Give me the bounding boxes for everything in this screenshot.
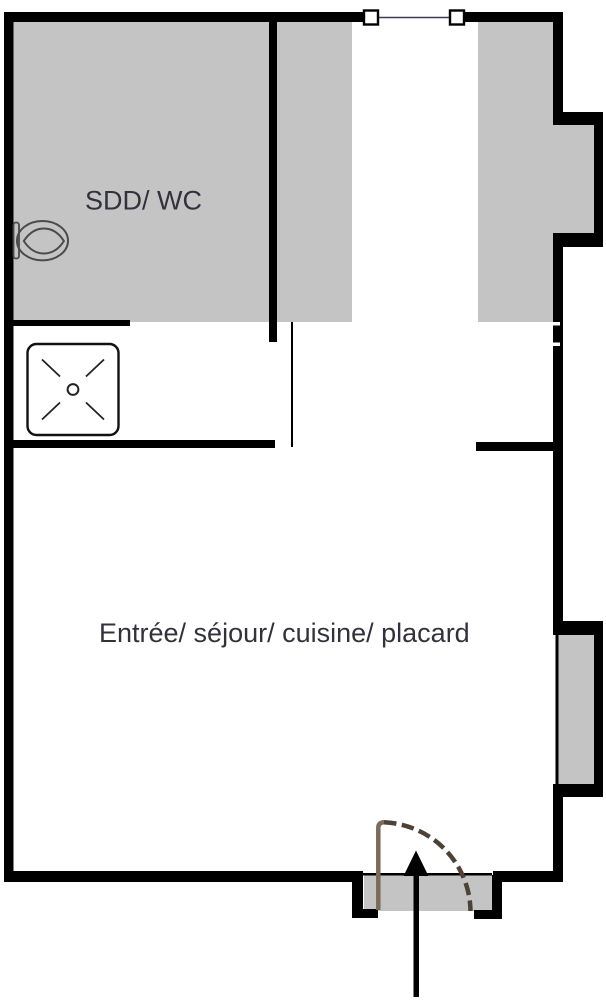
svg-text:SDD/ WC: SDD/ WC [85,186,202,216]
svg-text:Entrée/ séjour/ cuisine/ placa: Entrée/ séjour/ cuisine/ placard [99,618,470,648]
